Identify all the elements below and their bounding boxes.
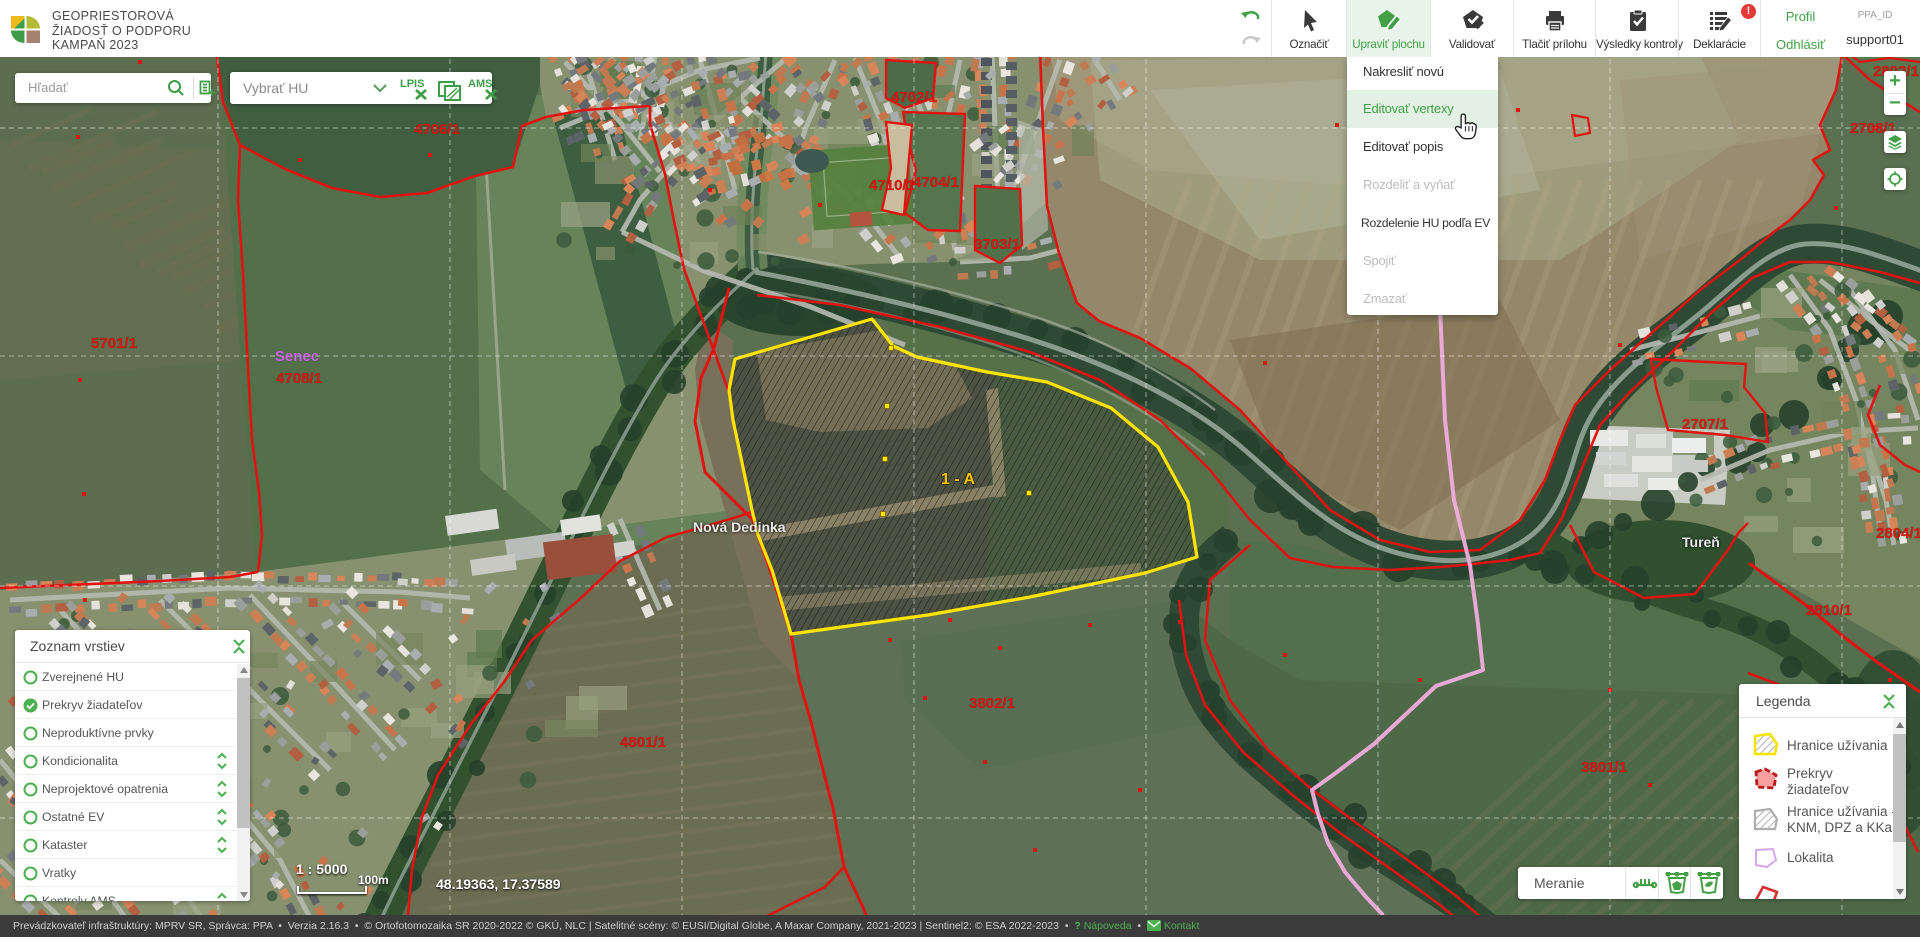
svg-text:2810/1: 2810/1 — [1806, 602, 1852, 619]
svg-text:2707/1: 2707/1 — [1682, 416, 1728, 433]
svg-text:4708/1: 4708/1 — [276, 370, 322, 387]
svg-text:2804/1: 2804/1 — [1876, 525, 1920, 542]
svg-text:3703/1: 3703/1 — [974, 236, 1020, 253]
svg-text:4710/1: 4710/1 — [869, 177, 915, 194]
svg-text:48.19363, 17.37589: 48.19363, 17.37589 — [436, 876, 561, 892]
svg-text:1 : 5000: 1 : 5000 — [296, 861, 348, 877]
svg-text:4801/1: 4801/1 — [620, 734, 666, 751]
svg-text:3802/1: 3802/1 — [969, 695, 1015, 712]
svg-text:5701/1: 5701/1 — [91, 335, 137, 352]
svg-text:4706/1: 4706/1 — [414, 121, 460, 138]
svg-text:Senec: Senec — [275, 348, 319, 365]
svg-text:LPIS: LPIS — [400, 78, 424, 90]
svg-text:Tureň: Tureň — [1682, 534, 1720, 550]
svg-text:1 - A: 1 - A — [941, 471, 976, 488]
svg-text:Nová Dedinka: Nová Dedinka — [693, 519, 786, 535]
svg-text:AMS: AMS — [468, 78, 492, 90]
svg-text:4702/1: 4702/1 — [891, 89, 937, 106]
svg-text:4704/1: 4704/1 — [913, 174, 959, 191]
svg-text:3801/1: 3801/1 — [1581, 759, 1627, 776]
svg-text:100m: 100m — [358, 873, 389, 887]
